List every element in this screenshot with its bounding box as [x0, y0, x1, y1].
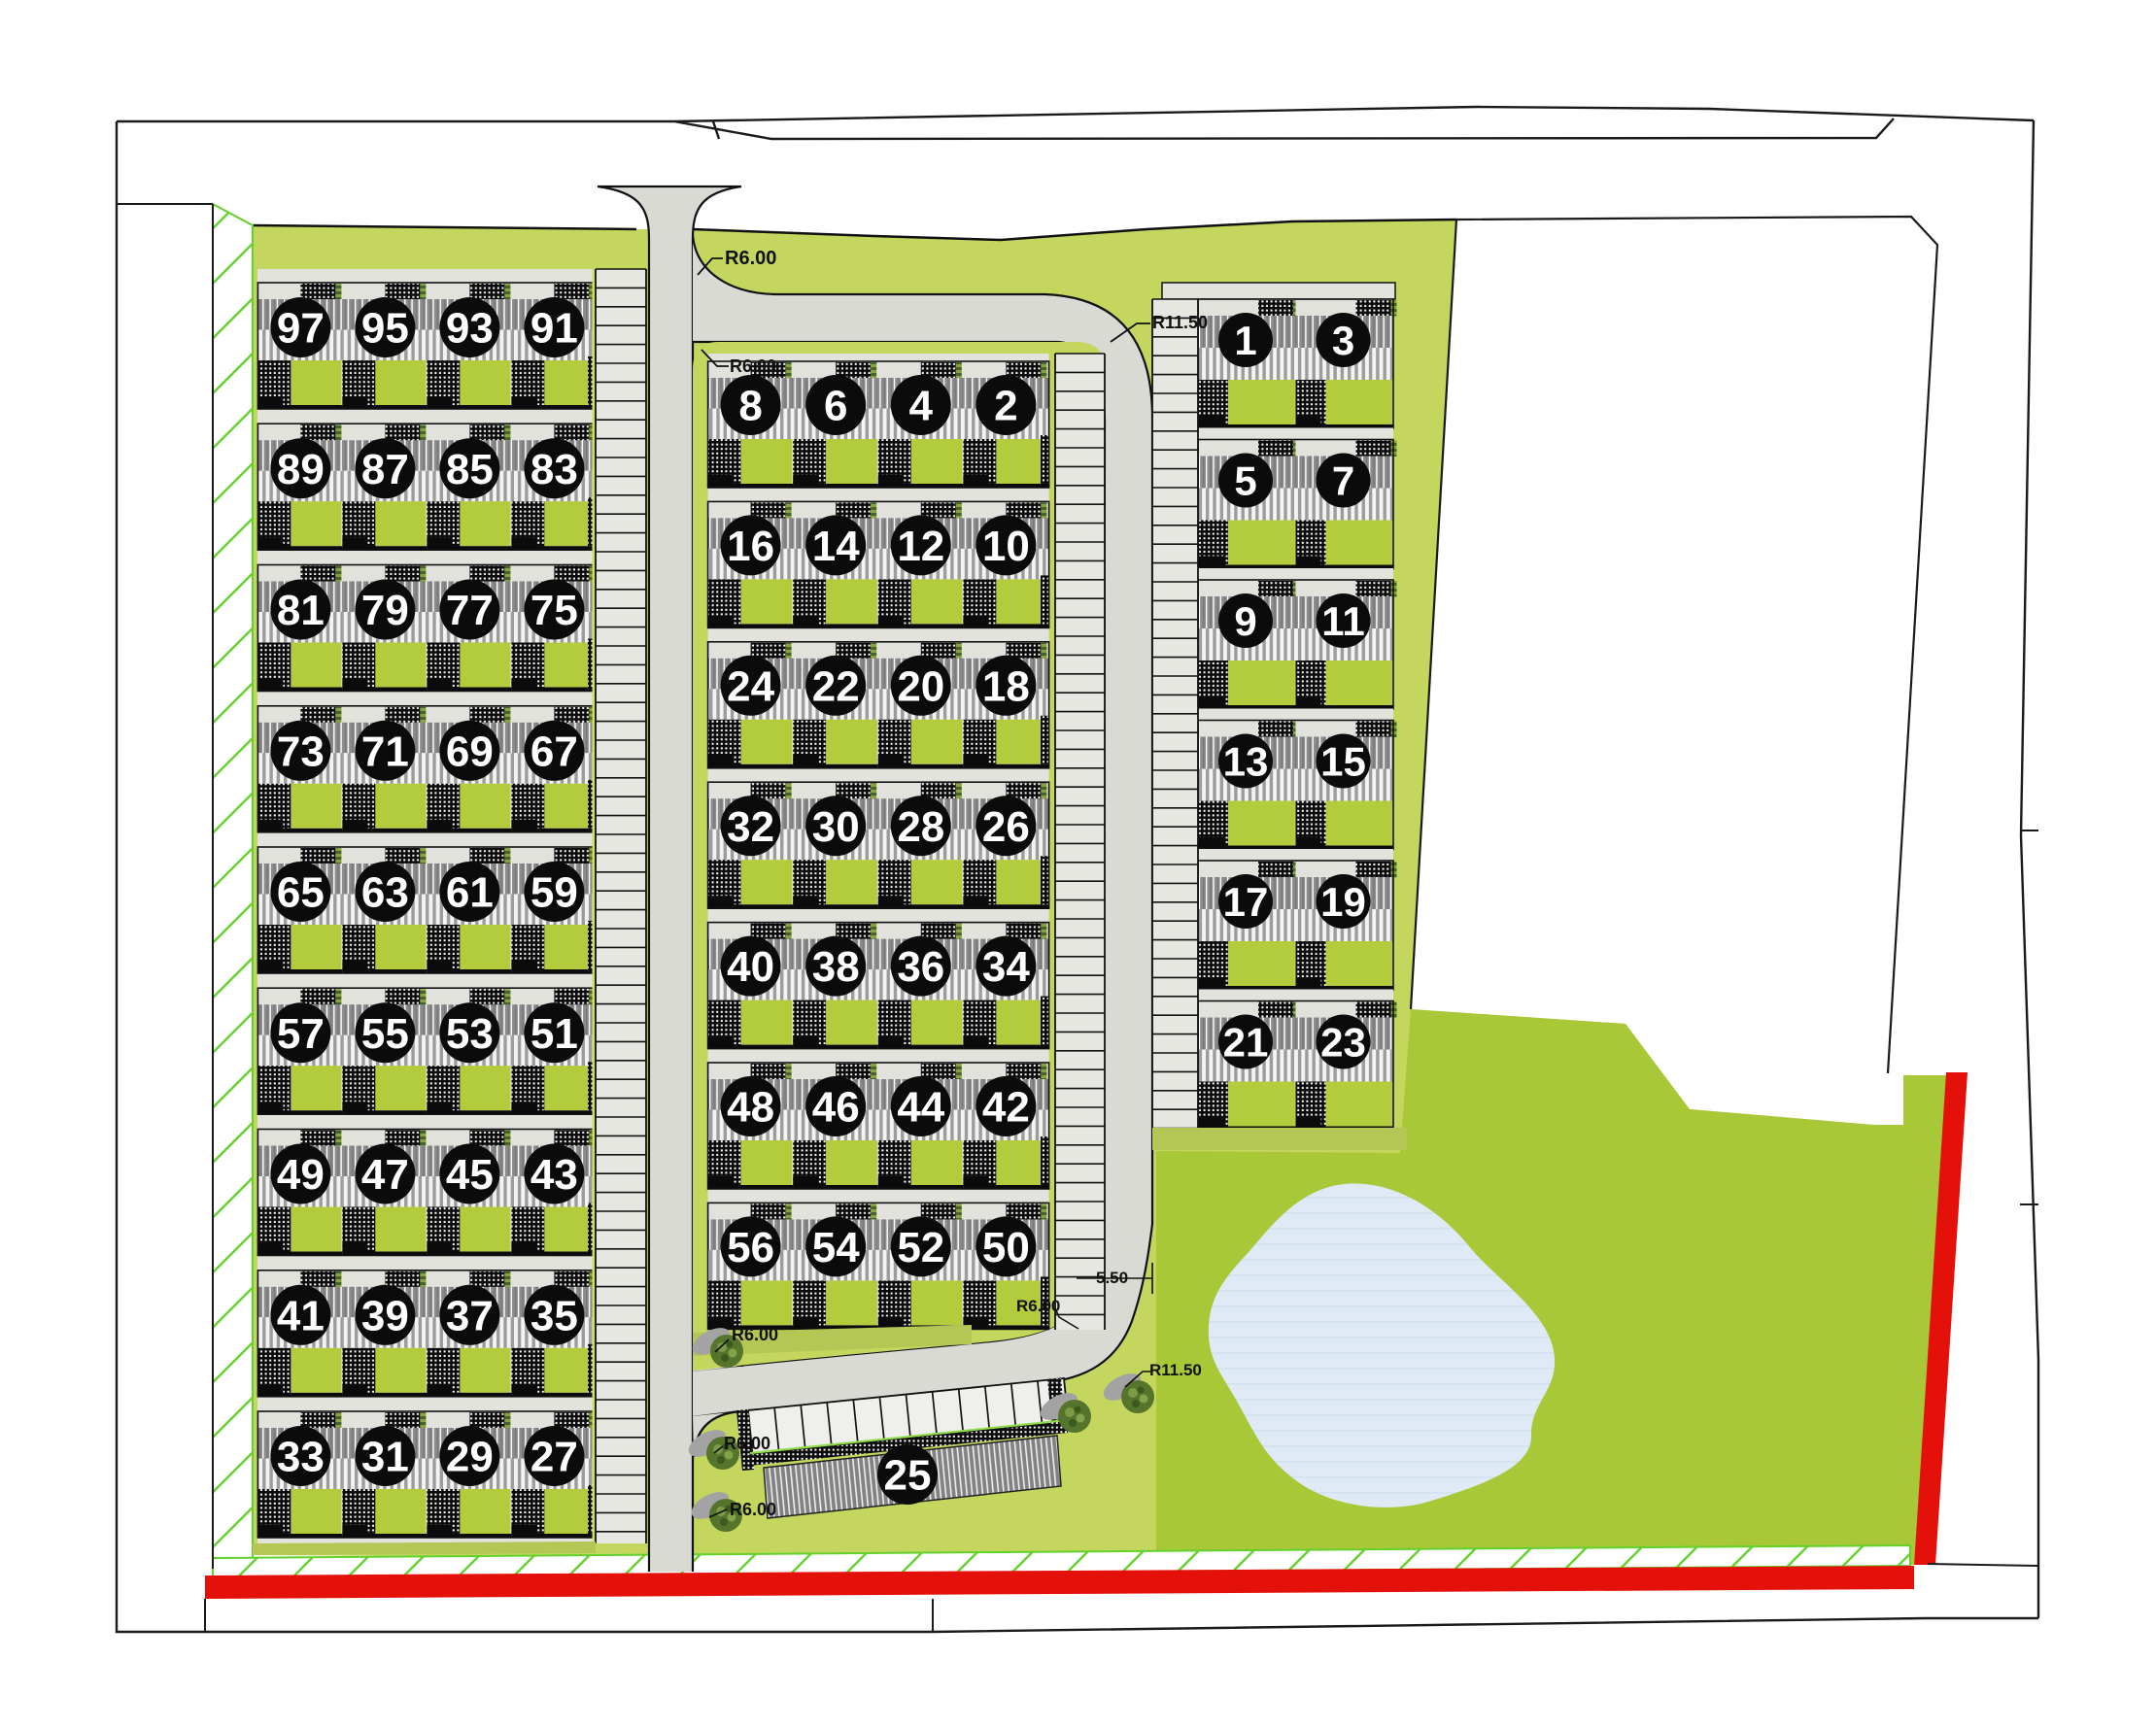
svg-text:21: 21	[1223, 1019, 1269, 1065]
svg-text:87: 87	[361, 446, 409, 493]
svg-text:31: 31	[361, 1434, 409, 1481]
svg-text:46: 46	[812, 1084, 860, 1132]
svg-text:8: 8	[738, 383, 762, 430]
svg-text:36: 36	[897, 943, 944, 991]
svg-text:R6.00: R6.00	[730, 356, 776, 376]
svg-text:73: 73	[277, 728, 325, 775]
svg-text:18: 18	[982, 662, 1030, 710]
svg-text:41: 41	[277, 1292, 325, 1339]
svg-text:40: 40	[727, 943, 774, 991]
svg-text:52: 52	[897, 1224, 944, 1271]
svg-text:59: 59	[530, 869, 578, 917]
svg-text:35: 35	[530, 1292, 578, 1339]
svg-text:11: 11	[1321, 598, 1364, 644]
svg-text:34: 34	[982, 943, 1030, 991]
svg-text:63: 63	[361, 869, 409, 917]
svg-text:17: 17	[1223, 879, 1269, 925]
svg-text:97: 97	[277, 305, 325, 353]
svg-text:54: 54	[812, 1224, 860, 1271]
svg-text:43: 43	[530, 1151, 578, 1199]
svg-text:47: 47	[361, 1151, 409, 1199]
svg-text:69: 69	[446, 728, 494, 775]
svg-text:30: 30	[812, 803, 860, 851]
svg-text:39: 39	[361, 1292, 409, 1339]
svg-text:13: 13	[1223, 738, 1269, 784]
svg-text:25: 25	[884, 1452, 932, 1500]
svg-text:44: 44	[897, 1084, 944, 1132]
svg-text:23: 23	[1320, 1019, 1366, 1065]
svg-text:67: 67	[530, 728, 578, 775]
svg-text:4: 4	[909, 383, 934, 430]
svg-text:5.50: 5.50	[1096, 1269, 1128, 1287]
svg-text:15: 15	[1320, 738, 1366, 784]
svg-text:9: 9	[1234, 598, 1256, 644]
svg-text:57: 57	[277, 1010, 325, 1058]
svg-text:2: 2	[994, 383, 1017, 430]
svg-text:37: 37	[446, 1292, 494, 1339]
svg-text:79: 79	[361, 587, 409, 634]
svg-text:5: 5	[1234, 457, 1256, 503]
svg-text:22: 22	[812, 662, 860, 710]
svg-text:26: 26	[982, 803, 1030, 851]
svg-text:48: 48	[727, 1084, 774, 1132]
svg-text:R11.50: R11.50	[1149, 1361, 1202, 1379]
svg-text:38: 38	[812, 943, 860, 991]
svg-text:R6.00: R6.00	[732, 1325, 778, 1344]
svg-text:83: 83	[530, 446, 578, 493]
svg-text:R6.00: R6.00	[1016, 1297, 1060, 1315]
svg-text:32: 32	[727, 803, 774, 851]
svg-text:45: 45	[446, 1151, 494, 1199]
svg-text:14: 14	[812, 523, 860, 570]
svg-text:24: 24	[727, 662, 774, 710]
svg-text:6: 6	[824, 383, 847, 430]
svg-text:R6.00: R6.00	[725, 248, 776, 269]
svg-text:51: 51	[530, 1010, 578, 1058]
svg-text:75: 75	[530, 587, 578, 634]
svg-text:20: 20	[897, 662, 944, 710]
svg-text:77: 77	[446, 587, 494, 634]
svg-text:29: 29	[446, 1434, 494, 1481]
svg-text:53: 53	[446, 1010, 494, 1058]
svg-text:R6.00: R6.00	[724, 1434, 770, 1453]
svg-text:61: 61	[446, 869, 494, 917]
svg-text:27: 27	[530, 1434, 578, 1481]
svg-text:28: 28	[897, 803, 944, 851]
svg-text:19: 19	[1320, 879, 1366, 925]
svg-text:16: 16	[727, 523, 774, 570]
svg-text:R6.00: R6.00	[730, 1500, 776, 1519]
svg-text:55: 55	[361, 1010, 409, 1058]
svg-text:7: 7	[1332, 457, 1354, 503]
svg-text:10: 10	[982, 523, 1030, 570]
svg-text:1: 1	[1234, 318, 1256, 363]
svg-text:89: 89	[277, 446, 325, 493]
svg-text:56: 56	[727, 1224, 774, 1271]
svg-text:95: 95	[361, 305, 409, 353]
svg-text:33: 33	[277, 1434, 325, 1481]
svg-text:85: 85	[446, 446, 494, 493]
svg-text:12: 12	[897, 523, 944, 570]
svg-text:93: 93	[446, 305, 494, 353]
svg-text:3: 3	[1332, 318, 1354, 363]
svg-text:49: 49	[277, 1151, 325, 1199]
svg-text:71: 71	[361, 728, 409, 775]
svg-text:91: 91	[530, 305, 578, 353]
svg-text:50: 50	[982, 1224, 1030, 1271]
svg-text:65: 65	[277, 869, 325, 917]
svg-text:42: 42	[982, 1084, 1030, 1132]
svg-text:81: 81	[277, 587, 325, 634]
svg-text:R11.50: R11.50	[1152, 313, 1208, 332]
